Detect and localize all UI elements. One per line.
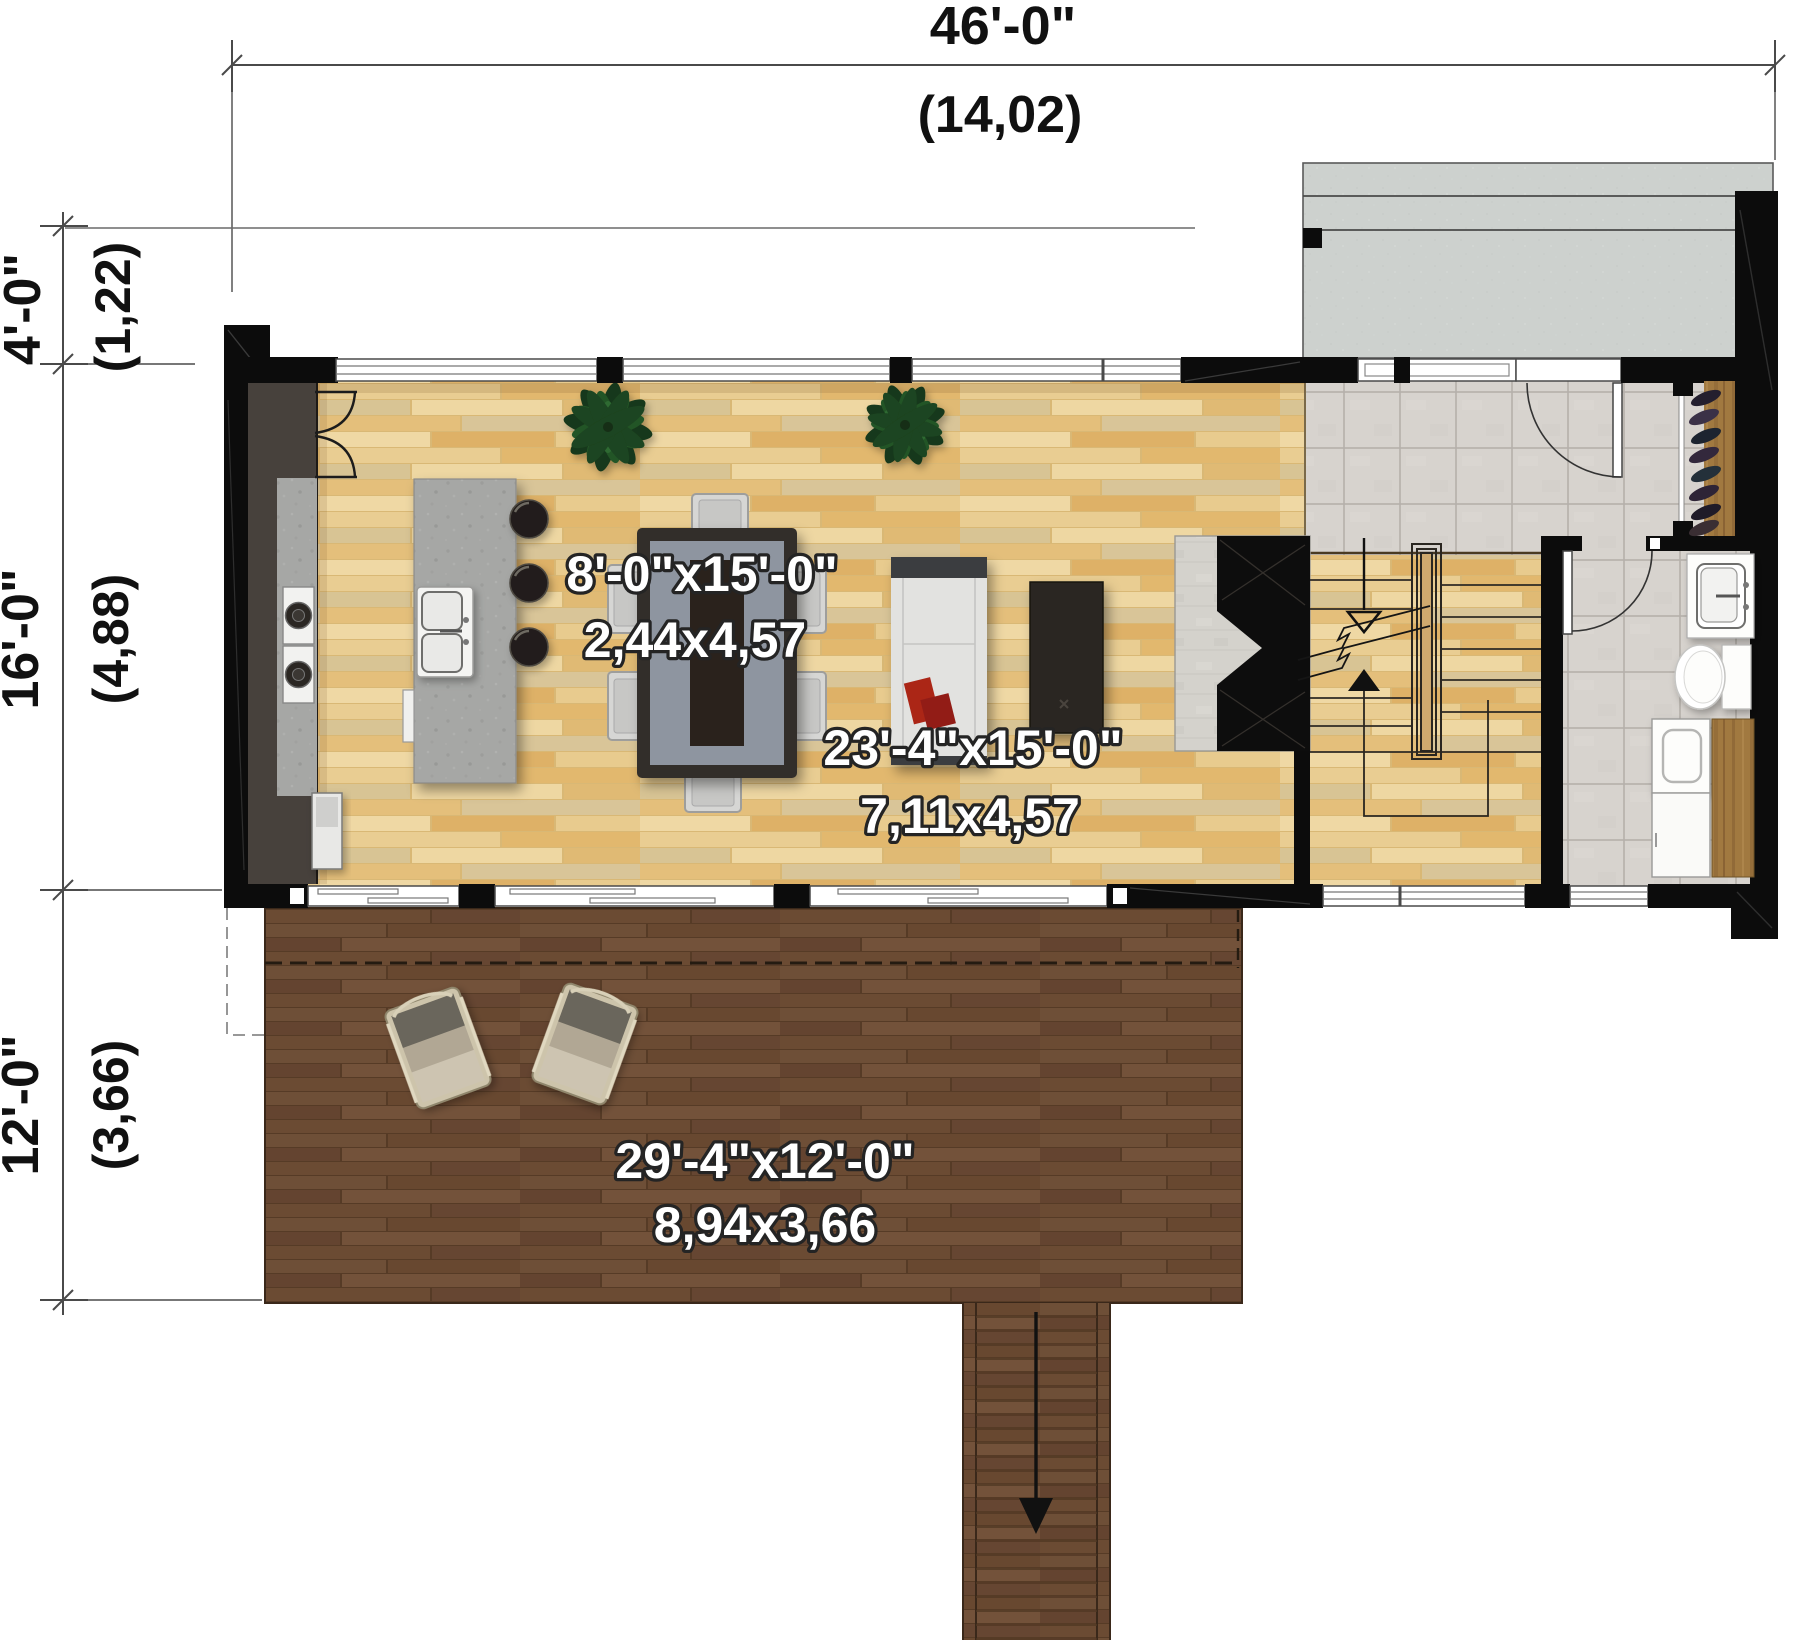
svg-text:(14,02): (14,02) bbox=[918, 86, 1083, 144]
svg-text:4'-0": 4'-0" bbox=[0, 253, 52, 365]
svg-text:46'-0": 46'-0" bbox=[930, 0, 1077, 56]
svg-text:(1,22): (1,22) bbox=[85, 242, 141, 373]
svg-text:(4,88): (4,88) bbox=[83, 574, 139, 705]
svg-text:29'-4"x12'-0": 29'-4"x12'-0" bbox=[615, 1133, 914, 1189]
svg-text:8,94x3,66: 8,94x3,66 bbox=[654, 1197, 876, 1253]
svg-text:12'-0": 12'-0" bbox=[0, 1034, 50, 1175]
svg-text:23'-4"x15'-0": 23'-4"x15'-0" bbox=[823, 720, 1122, 776]
svg-text:(3,66): (3,66) bbox=[83, 1040, 139, 1171]
svg-text:2,44x4,57: 2,44x4,57 bbox=[584, 612, 806, 668]
svg-text:16'-0": 16'-0" bbox=[0, 568, 50, 709]
svg-text:8'-0"x15'-0": 8'-0"x15'-0" bbox=[566, 546, 837, 602]
svg-text:7,11x4,57: 7,11x4,57 bbox=[860, 788, 1080, 844]
